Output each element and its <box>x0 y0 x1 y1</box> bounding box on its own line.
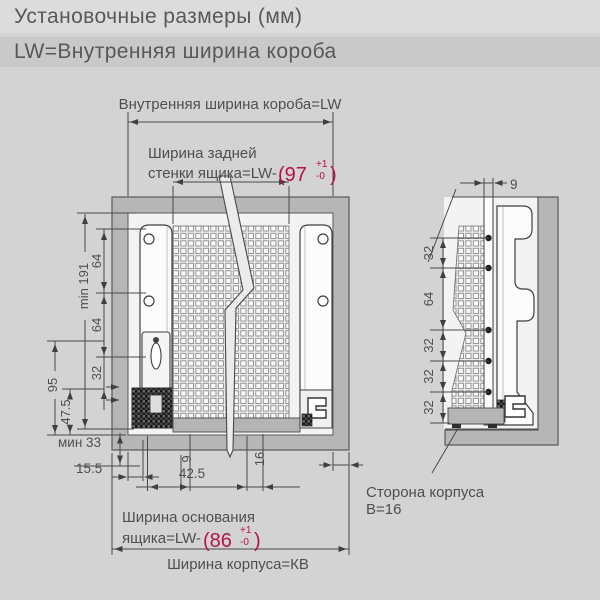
base-close-paren: ) <box>254 530 261 552</box>
dim-label-64a: 64 <box>89 254 104 268</box>
dim-side-thickness <box>319 452 363 471</box>
dim-label-95: 95 <box>45 378 60 392</box>
dim-label-42-5: 42.5 <box>179 466 205 481</box>
dim-label-min191: min 191 <box>76 263 91 309</box>
dim-label-9: 9 <box>179 455 194 462</box>
screenshot-root: Установочные размеры (мм) LW=Внутренняя … <box>0 0 600 600</box>
side-dim-label-32d: 32 <box>421 400 436 414</box>
base-tol-plus: +1 <box>240 525 252 536</box>
back-wall-value: (97 <box>278 164 307 186</box>
dim-label-16: 16 <box>252 452 267 466</box>
dim-label-47-5: 47.5 <box>58 399 73 424</box>
side-dim-label-32b: 32 <box>421 338 436 352</box>
side-dim-label-32a: 32 <box>421 246 436 260</box>
side-mesh-panel <box>452 226 484 408</box>
back-wall-tol-plus: +1 <box>316 159 328 170</box>
side-label-line1: Сторона корпуса <box>366 484 485 501</box>
back-wall-label-line1: Ширина задней <box>148 145 257 162</box>
dim-label-cabinet-width: Ширина корпуса=КВ <box>167 556 309 573</box>
back-wall-close-paren: ) <box>330 164 337 186</box>
side-dim-label-32c: 32 <box>421 369 436 383</box>
dim-label-32: 32 <box>89 366 104 380</box>
base-label-line1: Ширина основания <box>122 509 255 526</box>
dim-label-min33: мин 33 <box>58 435 101 450</box>
dim-label-15-5: 15.5 <box>76 461 102 476</box>
back-wall-tol-minus: -0 <box>316 171 325 182</box>
base-value: (86 <box>203 530 232 552</box>
side-dim-label-9: 9 <box>510 177 518 192</box>
dim-label-inner-width: Внутренняя ширина короба=LW <box>119 96 343 113</box>
back-wall-label-line2: стенки ящика=LW- <box>148 165 277 182</box>
base-tol-minus: -0 <box>240 537 249 548</box>
runner-mechanism-right <box>300 390 332 428</box>
base-label-line2: ящика=LW- <box>122 530 201 547</box>
side-back-panel <box>484 197 493 425</box>
side-dim-label-64: 64 <box>421 292 436 306</box>
side-label-line2: В=16 <box>366 501 401 518</box>
drawer-base-strip <box>173 418 300 432</box>
installation-diagram: Внутренняя ширина короба=LW Ширина задне… <box>0 0 600 600</box>
dim-label-64b: 64 <box>89 318 104 332</box>
